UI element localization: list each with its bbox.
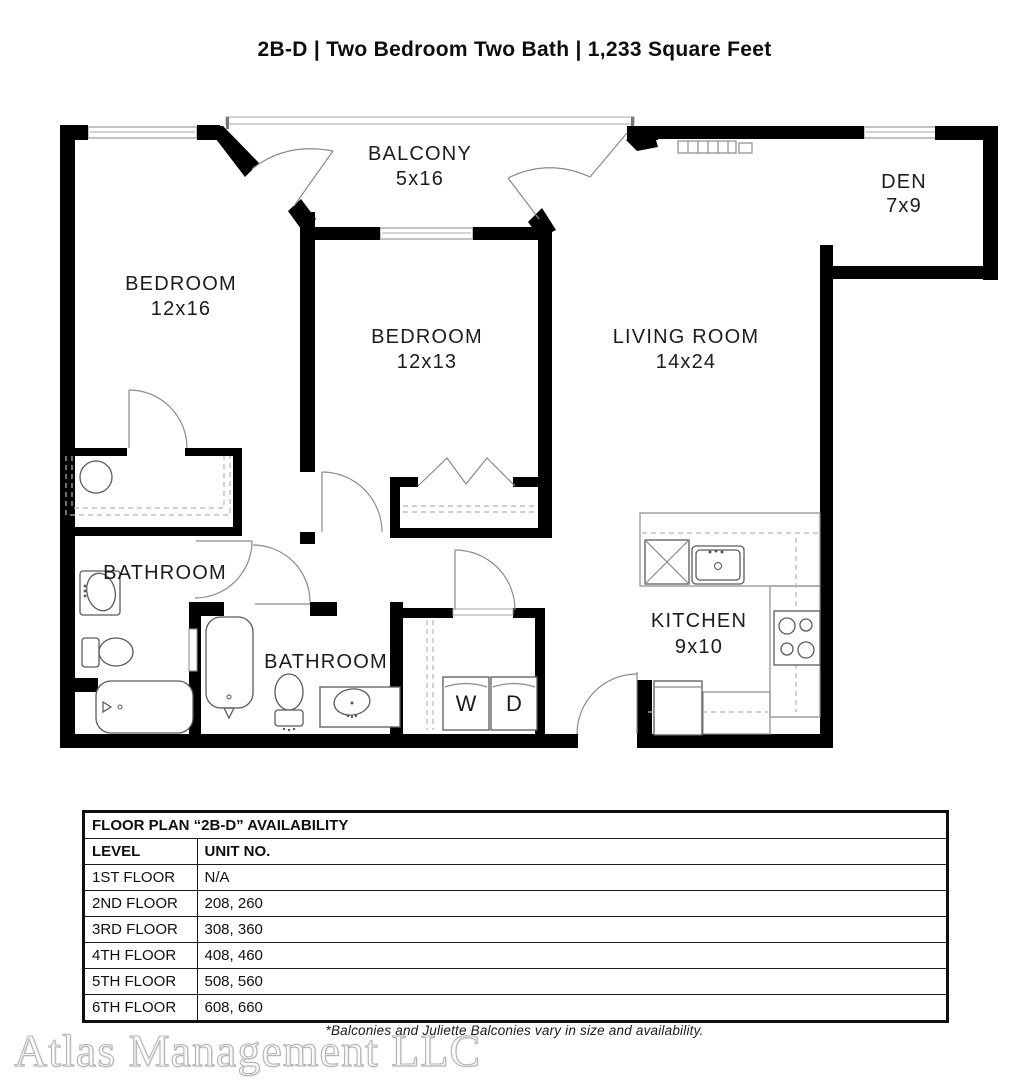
dishwasher-icon <box>645 540 689 584</box>
wall-niche <box>189 629 197 671</box>
bathtub-icon <box>206 617 253 718</box>
room-dims-den: 7x9 <box>886 195 922 217</box>
room-label-bathroom2: BATHROOM <box>264 651 388 673</box>
room-dims-living: 14x24 <box>656 351 717 373</box>
balcony-railing <box>226 117 634 129</box>
bathtub-icon <box>96 681 193 733</box>
level-cell: 5TH FLOOR <box>84 969 197 995</box>
dryer-label: D <box>506 691 522 716</box>
table-row: 2ND FLOOR 208, 260 <box>84 891 947 917</box>
floor-plan-flyer: 2B-D | Two Bedroom Two Bath | 1,233 Squa… <box>0 0 1029 1080</box>
availability-table: FLOOR PLAN “2B-D” AVAILABILITY LEVEL UNI… <box>83 811 948 1022</box>
unit-cell: 508, 560 <box>197 969 947 995</box>
laundry-door <box>453 550 515 615</box>
room-label-bedroom2: BEDROOM <box>371 326 483 348</box>
room-label-bedroom1: BEDROOM <box>125 273 237 295</box>
window <box>864 127 937 138</box>
footnote: *Balconies and Juliette Balconies vary i… <box>0 1023 1029 1038</box>
table-row: 4TH FLOOR 408, 460 <box>84 943 947 969</box>
bathroom2-door <box>253 545 310 604</box>
balcony-door-left <box>252 149 333 206</box>
bedroom2-door <box>322 472 382 532</box>
room-dims-balcony: 5x16 <box>396 168 444 190</box>
toilet-icon <box>82 638 133 667</box>
room-label-balcony: BALCONY <box>368 143 472 165</box>
level-cell: 3RD FLOOR <box>84 917 197 943</box>
toilet-icon <box>275 674 303 731</box>
stove-icon <box>774 611 820 665</box>
level-cell: 6TH FLOOR <box>84 995 197 1022</box>
sink-icon <box>320 687 400 727</box>
room-label-living: LIVING ROOM <box>613 326 760 348</box>
washer-label: W <box>456 691 477 716</box>
closet-shelving <box>66 456 230 515</box>
unit-cell: 308, 360 <box>197 917 947 943</box>
table-header-row: LEVEL UNIT NO. <box>84 839 947 865</box>
entry-door <box>577 672 637 734</box>
table-row: 3RD FLOOR 308, 360 <box>84 917 947 943</box>
room-label-den: DEN <box>881 171 927 193</box>
window <box>380 228 473 239</box>
room-label-kitchen: KITCHEN <box>651 610 747 632</box>
closet-door-bedroom1 <box>129 390 187 448</box>
table-row: 5TH FLOOR 508, 560 <box>84 969 947 995</box>
floor-plan-drawing: BALCONY 5x16 DEN 7x9 BEDROOM 12x16 BEDRO… <box>0 0 1029 790</box>
kitchen-sink-icon <box>692 546 744 584</box>
table-title-row: FLOOR PLAN “2B-D” AVAILABILITY <box>84 812 947 839</box>
table-row: 1ST FLOOR N/A <box>84 865 947 891</box>
unit-cell: N/A <box>197 865 947 891</box>
unit-cell: 608, 660 <box>197 995 947 1022</box>
table-row: 6TH FLOOR 608, 660 <box>84 995 947 1022</box>
room-dims-bedroom2: 12x13 <box>397 351 458 373</box>
unit-cell: 208, 260 <box>197 891 947 917</box>
room-dims-kitchen: 9x10 <box>675 636 723 658</box>
bifold-closet-doors <box>418 458 515 486</box>
level-cell: 1ST FLOOR <box>84 865 197 891</box>
walls <box>60 125 998 748</box>
heater-vent-icon <box>678 141 752 153</box>
level-cell: 2ND FLOOR <box>84 891 197 917</box>
table-title: FLOOR PLAN “2B-D” AVAILABILITY <box>84 812 947 839</box>
col-header-unit: UNIT NO. <box>197 839 947 865</box>
fridge-icon <box>654 681 702 735</box>
room-dims-bedroom1: 12x16 <box>151 298 212 320</box>
room-label-bathroom1: BATHROOM <box>103 562 227 584</box>
level-cell: 4TH FLOOR <box>84 943 197 969</box>
balcony-door-right <box>508 133 627 219</box>
window <box>88 127 197 138</box>
unit-cell: 408, 460 <box>197 943 947 969</box>
col-header-level: LEVEL <box>84 839 197 865</box>
